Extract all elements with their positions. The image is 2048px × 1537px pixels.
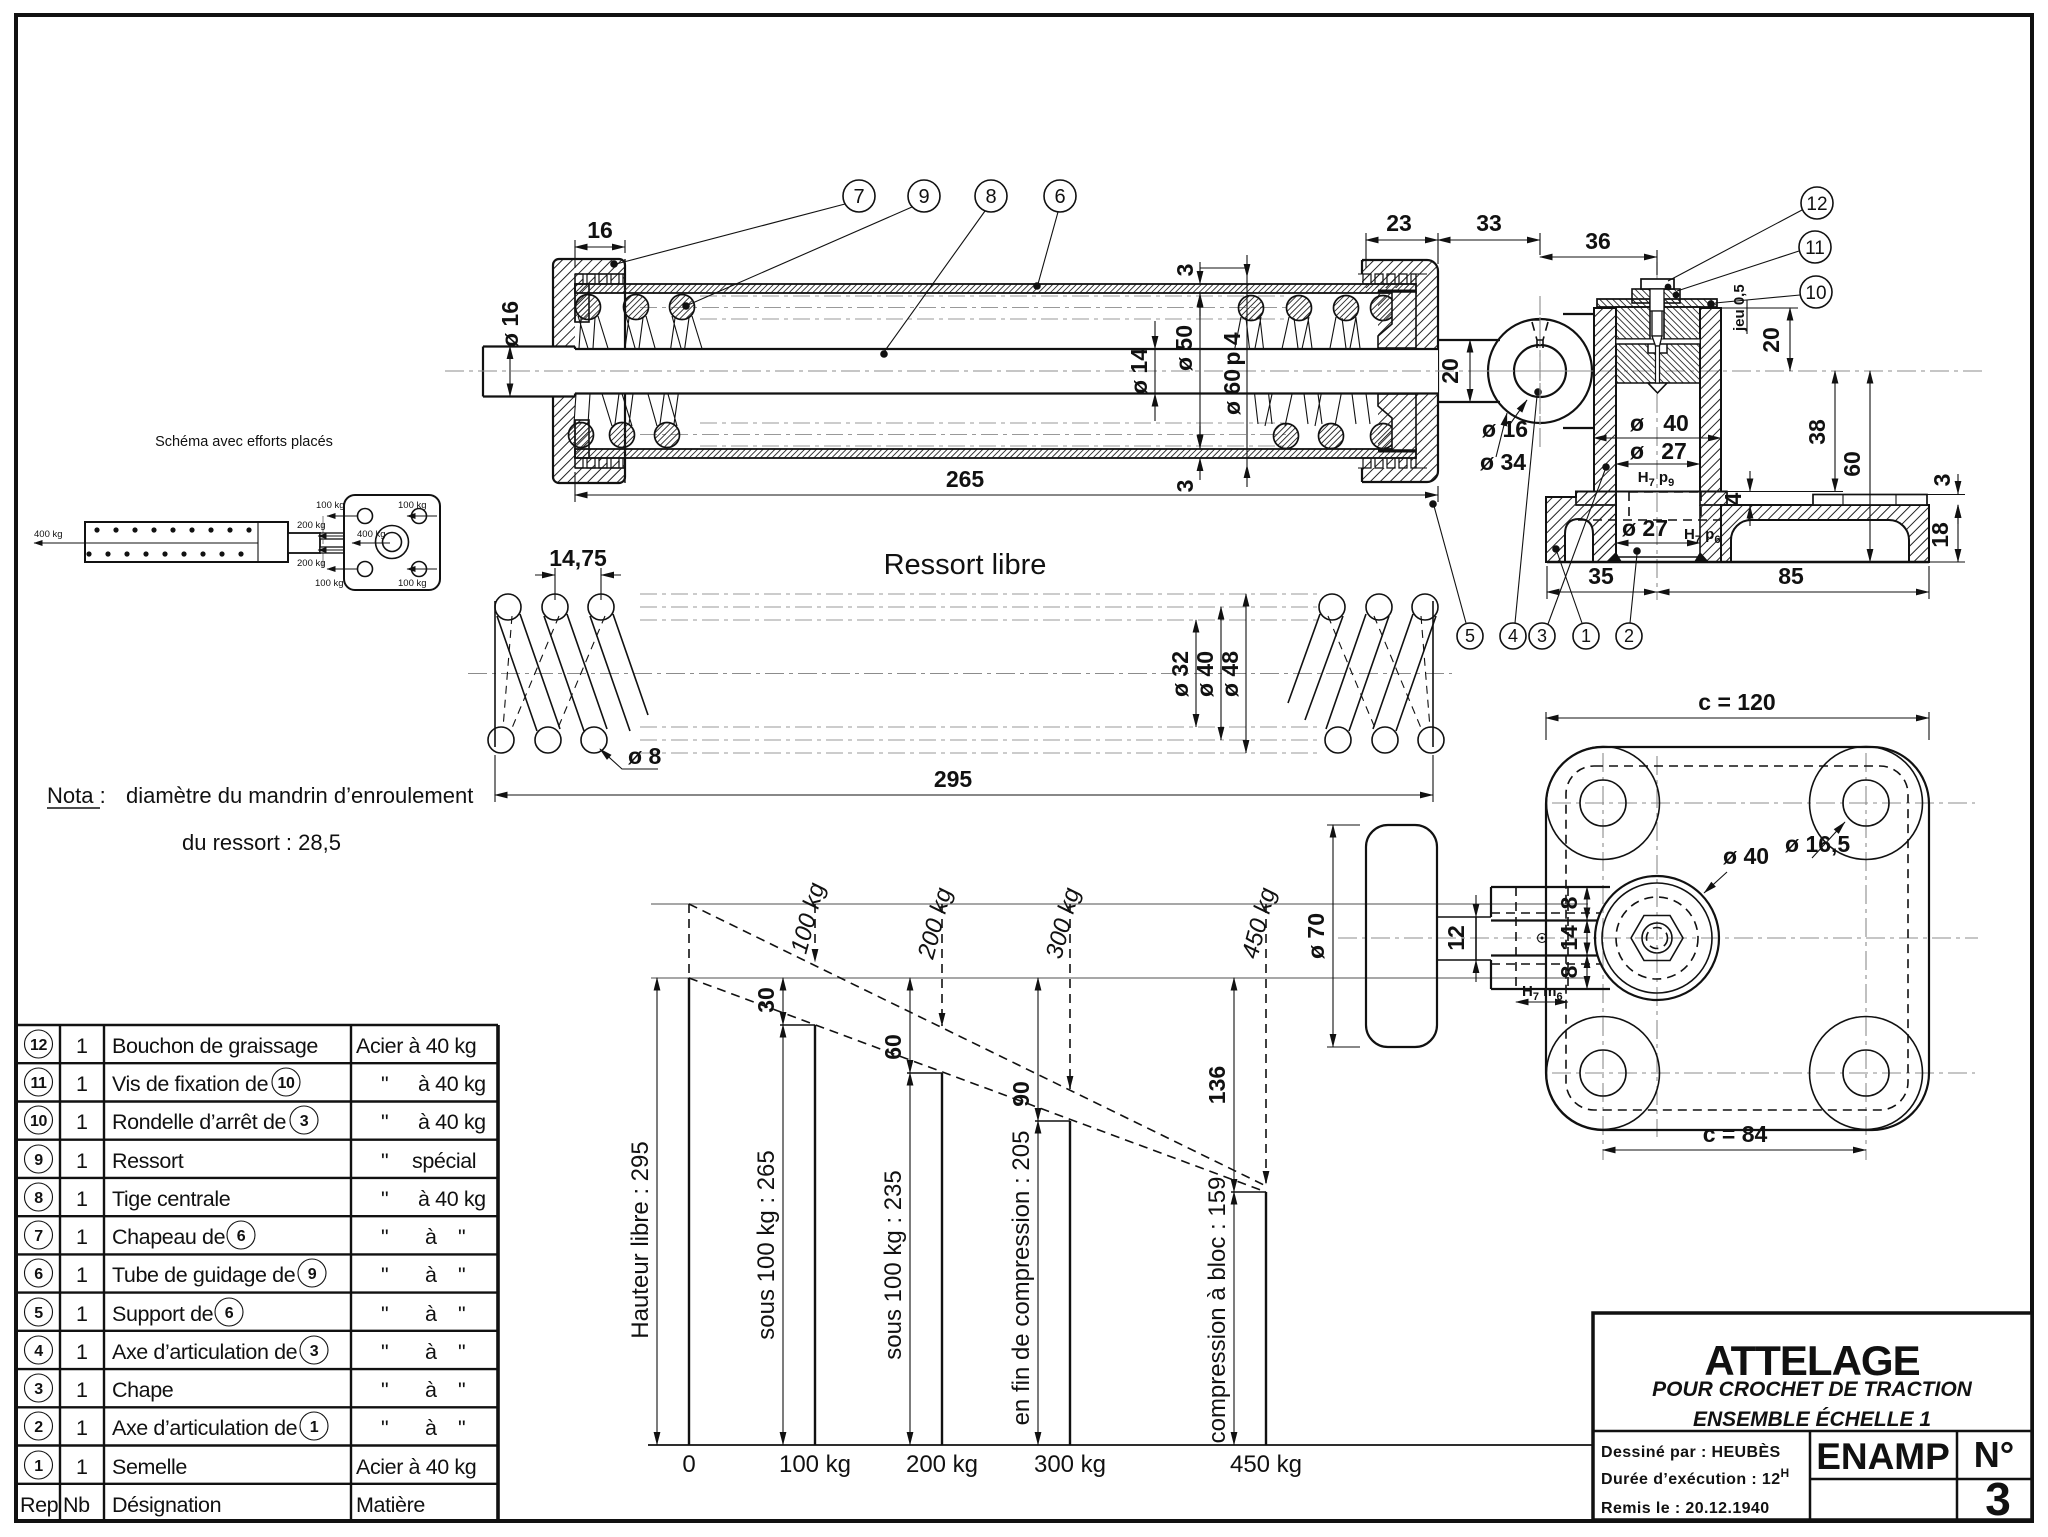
- svg-text:1: 1: [76, 1416, 88, 1440]
- svg-text:à: à: [425, 1263, 437, 1287]
- svg-text:3: 3: [1172, 480, 1198, 493]
- svg-text:spécial: spécial: [412, 1149, 476, 1173]
- svg-text:100 kg: 100 kg: [398, 500, 427, 511]
- svg-text:Tube de guidage de: Tube de guidage de: [112, 1263, 295, 1287]
- svg-text:40: 40: [1663, 410, 1689, 436]
- svg-text:18: 18: [1927, 522, 1953, 548]
- svg-text:100 kg: 100 kg: [398, 578, 427, 589]
- svg-text:": ": [458, 1302, 465, 1326]
- svg-text:60: 60: [880, 1034, 906, 1060]
- svg-text:POUR CROCHET DE TRACTION: POUR CROCHET DE TRACTION: [1652, 1378, 1973, 1401]
- svg-text:à 40 kg: à 40 kg: [418, 1110, 486, 1134]
- svg-text:1: 1: [76, 1187, 88, 1211]
- svg-text:1: 1: [76, 1072, 88, 1096]
- svg-text:Rondelle d’arrêt de: Rondelle d’arrêt de: [112, 1110, 286, 1134]
- svg-text:": ": [381, 1302, 388, 1326]
- svg-text:Acier à 40 kg: Acier à 40 kg: [356, 1034, 476, 1058]
- svg-text:ø 27: ø 27: [1622, 515, 1668, 541]
- svg-text:à: à: [425, 1378, 437, 1402]
- svg-text:0: 0: [682, 1451, 695, 1478]
- svg-text:Ressort: Ressort: [112, 1149, 184, 1173]
- svg-text:à: à: [425, 1225, 437, 1249]
- svg-text:450 kg: 450 kg: [1230, 1451, 1302, 1478]
- svg-text:": ": [381, 1110, 388, 1134]
- svg-text:Ressort libre: Ressort libre: [884, 549, 1047, 581]
- svg-text:à 40 kg: à 40 kg: [418, 1072, 486, 1096]
- svg-text:7: 7: [34, 1228, 43, 1245]
- svg-text:4: 4: [34, 1343, 43, 1360]
- svg-text:ø 50: ø 50: [1171, 325, 1197, 371]
- svg-text:6: 6: [237, 1228, 246, 1245]
- svg-text:ø 40: ø 40: [1723, 843, 1769, 869]
- svg-text:1: 1: [34, 1458, 43, 1475]
- svg-text:12: 12: [1443, 925, 1469, 951]
- svg-text:200 kg: 200 kg: [906, 1451, 978, 1478]
- svg-text:3: 3: [1537, 626, 1547, 646]
- svg-text:ø 16,5: ø 16,5: [1785, 831, 1850, 857]
- svg-text:6: 6: [1054, 186, 1065, 208]
- svg-text:1: 1: [1581, 626, 1591, 646]
- svg-text:à 40 kg: à 40 kg: [418, 1187, 486, 1211]
- svg-text:sous 100 kg : 265: sous 100 kg : 265: [753, 1150, 780, 1339]
- svg-text:1: 1: [76, 1110, 88, 1134]
- svg-text:7: 7: [853, 186, 864, 208]
- svg-text:à: à: [425, 1302, 437, 1326]
- svg-text:Chapeau de: Chapeau de: [112, 1225, 225, 1249]
- svg-text:295: 295: [934, 766, 973, 792]
- svg-text:1: 1: [76, 1302, 88, 1326]
- svg-text:": ": [381, 1378, 388, 1402]
- svg-text:8: 8: [34, 1190, 43, 1207]
- svg-text:ø 40: ø 40: [1192, 651, 1218, 697]
- svg-text:diamètre du mandrin d’enroulem: diamètre du mandrin d’enroulement: [126, 783, 473, 808]
- svg-text:ø: ø: [1630, 410, 1644, 436]
- svg-text:11: 11: [1805, 238, 1825, 259]
- svg-text:200 kg: 200 kg: [297, 520, 326, 531]
- svg-text:1: 1: [76, 1263, 88, 1287]
- svg-text:Acier à 40 kg: Acier à 40 kg: [356, 1455, 476, 1479]
- svg-text:c = 84: c = 84: [1703, 1121, 1768, 1147]
- svg-text:": ": [381, 1072, 388, 1096]
- svg-text:ø 60: ø 60: [1219, 369, 1245, 415]
- svg-text:8: 8: [1556, 965, 1582, 978]
- svg-text:ø 34: ø 34: [1480, 449, 1526, 475]
- svg-text:27: 27: [1661, 438, 1687, 464]
- svg-text:ø 70: ø 70: [1303, 913, 1329, 959]
- svg-text:Nota :: Nota :: [47, 783, 106, 808]
- svg-text:12: 12: [1806, 194, 1827, 215]
- svg-text:": ": [381, 1416, 388, 1440]
- svg-text:14: 14: [1556, 925, 1582, 951]
- svg-text:10: 10: [30, 1113, 47, 1130]
- svg-text:Schéma avec efforts placés: Schéma avec efforts placés: [155, 434, 333, 450]
- svg-text:": ": [381, 1340, 388, 1364]
- svg-text:4: 4: [1720, 492, 1746, 505]
- svg-text:": ": [458, 1263, 465, 1287]
- svg-text:5: 5: [34, 1305, 43, 1322]
- svg-text:Semelle: Semelle: [112, 1455, 187, 1479]
- svg-text:à: à: [425, 1340, 437, 1364]
- svg-text:33: 33: [1476, 210, 1502, 236]
- svg-text:": ": [381, 1187, 388, 1211]
- svg-text:1: 1: [310, 1419, 319, 1436]
- svg-text:Vis de fixation de: Vis de fixation de: [112, 1072, 268, 1096]
- svg-text:23: 23: [1386, 210, 1412, 236]
- svg-text:1: 1: [76, 1455, 88, 1479]
- svg-text:": ": [381, 1149, 388, 1173]
- svg-text:8: 8: [985, 186, 996, 208]
- svg-text:100 kg: 100 kg: [316, 500, 345, 511]
- svg-text:10: 10: [1805, 283, 1826, 304]
- svg-text:2: 2: [34, 1419, 43, 1436]
- svg-text:85: 85: [1778, 563, 1804, 589]
- svg-text:compression à bloc : 159: compression à bloc : 159: [1204, 1177, 1231, 1444]
- svg-text:90: 90: [1008, 1081, 1034, 1107]
- svg-text:4: 4: [1508, 626, 1518, 646]
- svg-text:60: 60: [1839, 451, 1865, 477]
- svg-text:Support de: Support de: [112, 1302, 213, 1326]
- svg-text:Matière: Matière: [356, 1493, 425, 1517]
- svg-text:6: 6: [34, 1266, 43, 1283]
- svg-text:200 kg: 200 kg: [297, 558, 326, 569]
- svg-text:8: 8: [1556, 896, 1582, 909]
- svg-text:12: 12: [30, 1037, 47, 1054]
- svg-text:ø 14: ø 14: [1126, 348, 1152, 394]
- svg-text:9: 9: [918, 186, 929, 208]
- svg-text:35: 35: [1588, 563, 1614, 589]
- svg-text:1: 1: [76, 1340, 88, 1364]
- svg-text:9: 9: [308, 1266, 317, 1283]
- svg-text:ø 32: ø 32: [1167, 651, 1193, 697]
- svg-text:1: 1: [76, 1034, 88, 1058]
- svg-text:c = 120: c = 120: [1698, 689, 1775, 715]
- svg-text:": ": [458, 1378, 465, 1402]
- svg-text:ENSEMBLE ÉCHELLE 1: ENSEMBLE ÉCHELLE 1: [1693, 1408, 1931, 1431]
- svg-text:ENAMP: ENAMP: [1816, 1436, 1950, 1477]
- svg-text:9: 9: [34, 1152, 43, 1169]
- svg-text:14,75: 14,75: [549, 545, 607, 571]
- svg-text:400 kg: 400 kg: [34, 529, 63, 540]
- svg-text:Rep: Rep: [20, 1493, 59, 1517]
- svg-text:ATTELAGE: ATTELAGE: [1704, 1337, 1919, 1384]
- svg-text:2: 2: [1624, 626, 1634, 646]
- svg-text:ø 48: ø 48: [1217, 651, 1243, 697]
- svg-text:1: 1: [76, 1149, 88, 1173]
- svg-text:en fin de compression : 205: en fin de compression : 205: [1008, 1131, 1035, 1426]
- svg-text:à: à: [425, 1416, 437, 1440]
- svg-text:3: 3: [300, 1113, 309, 1130]
- svg-text:300 kg: 300 kg: [1034, 1451, 1106, 1478]
- svg-text:Chape: Chape: [112, 1378, 173, 1402]
- svg-text:3: 3: [1985, 1473, 2011, 1525]
- svg-text:N°: N°: [1974, 1434, 2014, 1475]
- svg-text:136: 136: [1204, 1066, 1230, 1104]
- svg-text:Axe d’articulation de: Axe d’articulation de: [112, 1340, 297, 1364]
- svg-text:Hauteur libre : 295: Hauteur libre : 295: [627, 1141, 654, 1338]
- svg-text:": ": [381, 1263, 388, 1287]
- svg-text:3: 3: [1929, 474, 1955, 487]
- svg-text:du ressort : 28,5: du ressort : 28,5: [182, 830, 341, 855]
- svg-text:265: 265: [946, 466, 985, 492]
- svg-text:ø: ø: [1630, 438, 1644, 464]
- svg-text:ø 8: ø 8: [628, 743, 661, 769]
- svg-text:100 kg: 100 kg: [779, 1451, 851, 1478]
- svg-text:6: 6: [225, 1305, 234, 1322]
- svg-text:Dessiné par : HEUBÈS: Dessiné par : HEUBÈS: [1601, 1442, 1781, 1461]
- svg-text:3: 3: [310, 1343, 319, 1360]
- svg-text:3: 3: [34, 1381, 43, 1398]
- svg-text:p 4: p 4: [1219, 332, 1245, 365]
- svg-text:36: 36: [1585, 228, 1611, 254]
- svg-text:100 kg: 100 kg: [315, 578, 344, 589]
- svg-text:10: 10: [278, 1075, 295, 1092]
- svg-text:20: 20: [1758, 327, 1784, 353]
- svg-text:5: 5: [1465, 626, 1475, 646]
- svg-text:38: 38: [1804, 419, 1830, 445]
- svg-text:Remis le : 20.12.1940: Remis le : 20.12.1940: [1601, 1500, 1770, 1517]
- svg-text:Axe d’articulation de: Axe d’articulation de: [112, 1416, 297, 1440]
- svg-text:ø 16: ø 16: [497, 301, 523, 347]
- svg-text:Nb: Nb: [63, 1493, 90, 1517]
- svg-text:": ": [381, 1225, 388, 1249]
- svg-text:16: 16: [587, 217, 613, 243]
- svg-text:1: 1: [76, 1225, 88, 1249]
- svg-text:11: 11: [30, 1075, 47, 1092]
- svg-text:": ": [458, 1225, 465, 1249]
- svg-text:400 kg: 400 kg: [357, 529, 386, 540]
- svg-text:Bouchon de graissage: Bouchon de graissage: [112, 1034, 318, 1058]
- svg-text:Désignation: Désignation: [112, 1493, 221, 1517]
- svg-text:": ": [458, 1416, 465, 1440]
- svg-text:Tige centrale: Tige centrale: [112, 1187, 230, 1211]
- svg-text:30: 30: [753, 987, 779, 1013]
- svg-text:3: 3: [1172, 264, 1198, 277]
- svg-text:": ": [458, 1340, 465, 1364]
- svg-text:20: 20: [1437, 358, 1463, 384]
- svg-text:sous 100 kg : 235: sous 100 kg : 235: [880, 1170, 907, 1359]
- svg-text:1: 1: [76, 1378, 88, 1402]
